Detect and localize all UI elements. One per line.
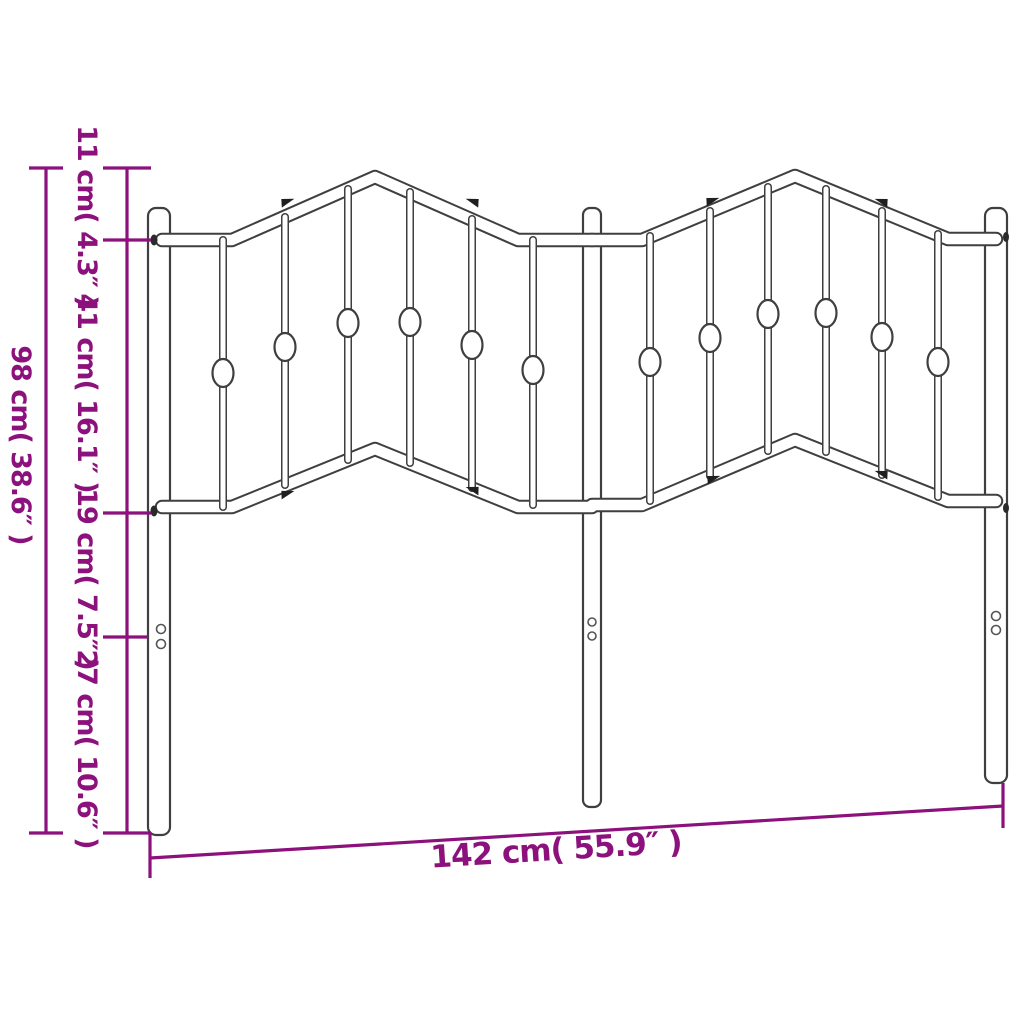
top-rail-left-panel [162, 177, 592, 240]
dimension-lines [29, 168, 1003, 878]
left-post [148, 208, 170, 835]
post-screw-holes [157, 612, 1001, 649]
dimension-label-lower-segment: 27 cm( 10.6″ ) [71, 619, 103, 879]
dimension-label-total-height: 98 cm( 38.6″ ) [5, 315, 37, 575]
product-dimension-diagram: 11 cm( 4.3″ ) 41 cm( 16.1″ ) 19 cm( 7.5″… [0, 0, 1024, 1024]
spindle-oval-accents [213, 299, 949, 387]
